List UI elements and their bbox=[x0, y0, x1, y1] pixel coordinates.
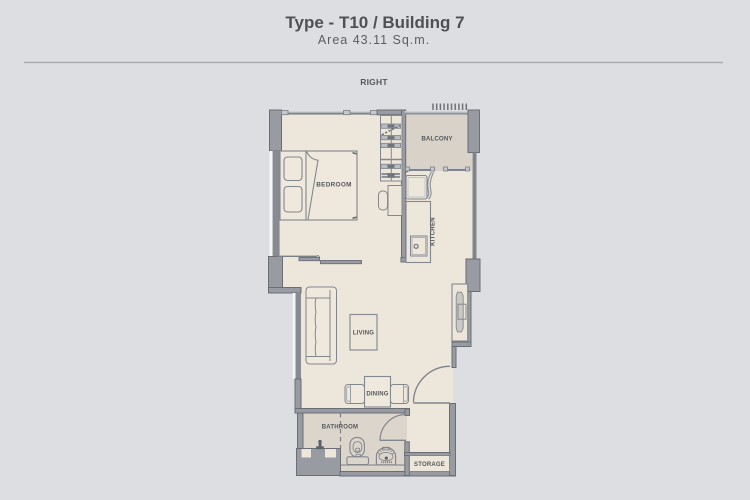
svg-text:DINING: DINING bbox=[366, 392, 388, 398]
svg-text:Area 43.11 Sq.m.: Area 43.11 Sq.m. bbox=[318, 33, 430, 47]
svg-text:STORAGE: STORAGE bbox=[414, 462, 445, 468]
svg-text:BALCONY: BALCONY bbox=[421, 136, 453, 143]
svg-text:KITCHEN: KITCHEN bbox=[431, 217, 437, 246]
svg-text:Type - T10 / Building 7: Type - T10 / Building 7 bbox=[285, 13, 464, 32]
svg-text:RIGHT: RIGHT bbox=[360, 77, 388, 87]
svg-text:LIVING: LIVING bbox=[353, 330, 374, 336]
svg-text:BATHROOM: BATHROOM bbox=[322, 425, 358, 431]
svg-text:BEDROOM: BEDROOM bbox=[316, 182, 351, 189]
